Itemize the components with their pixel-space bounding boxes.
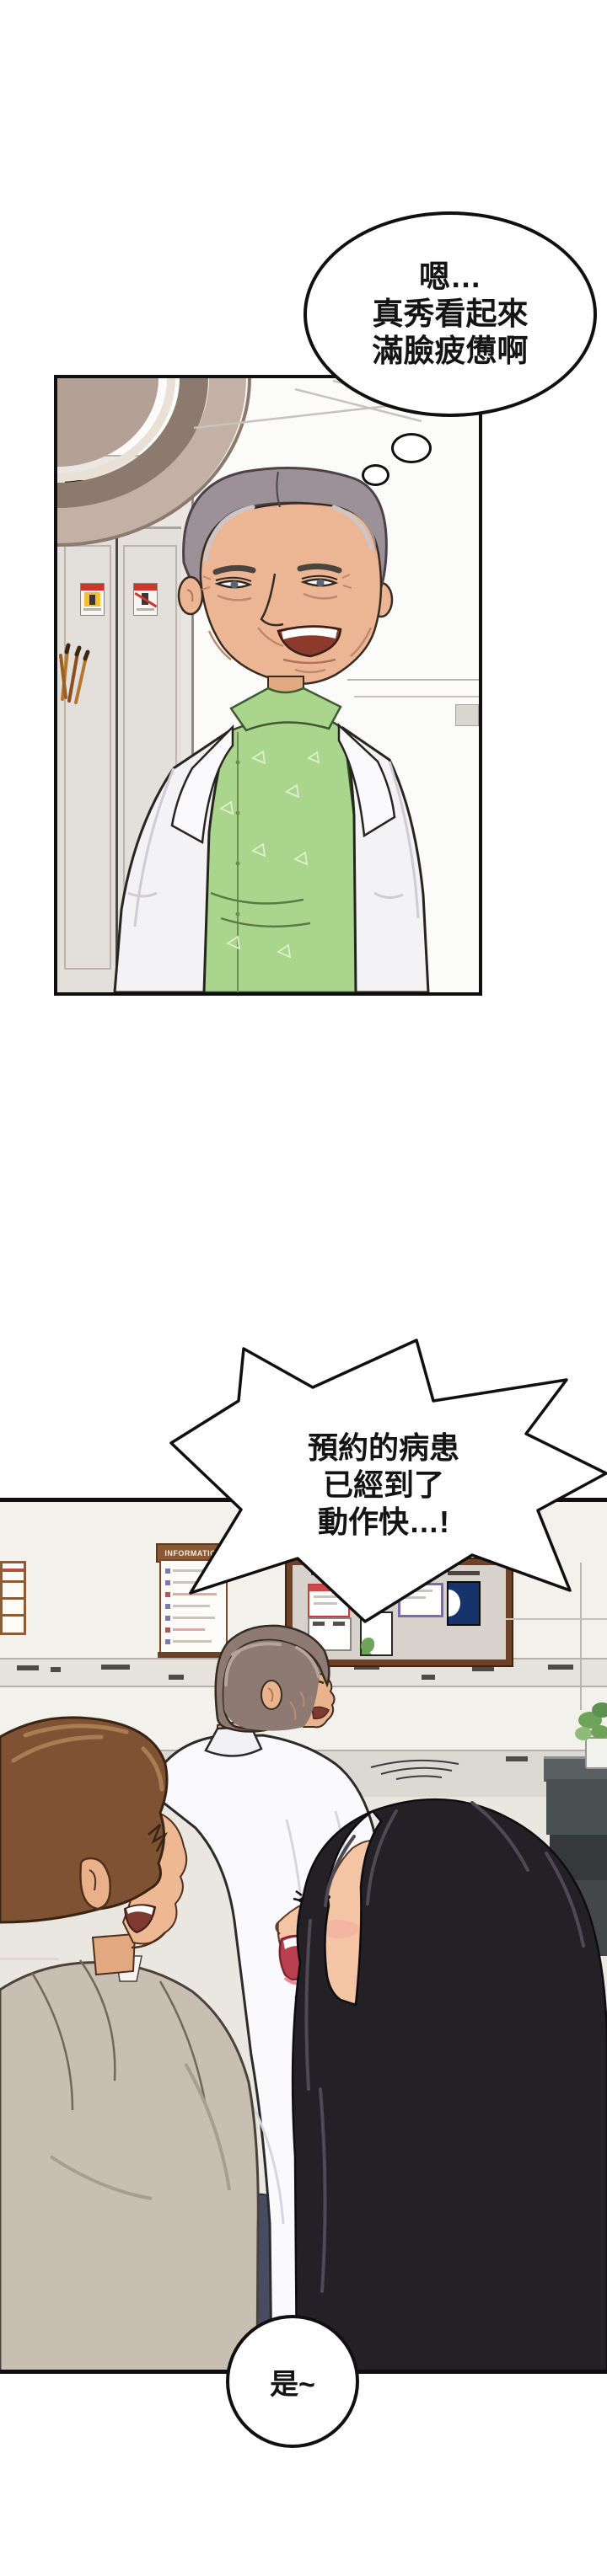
panel-1-clinic-hallway — [54, 375, 482, 996]
thought-line-2: 真秀看起來 — [373, 296, 529, 333]
reply-bubble: 是~ — [226, 2315, 359, 2448]
thought-trail-circle-large — [391, 433, 432, 463]
plant-leaves — [575, 1702, 607, 1740]
panel1-artwork — [57, 378, 479, 992]
thought-line-1: 嗯… — [419, 259, 481, 296]
burst-line-2: 已經到了 — [270, 1467, 497, 1504]
reply-text: 是~ — [270, 2361, 315, 2402]
thought-line-3: 滿臉疲憊啊 — [373, 333, 529, 370]
stick-decor — [61, 645, 88, 703]
burst-bubble-text: 預約的病患 已經到了 動作快…! — [270, 1430, 497, 1541]
woman-figure — [276, 1799, 607, 2370]
burst-line-1: 預約的病患 — [270, 1430, 497, 1467]
thought-bubble: 嗯… 真秀看起來 滿臉疲憊啊 — [303, 211, 597, 417]
burst-line-3: 動作快…! — [270, 1504, 497, 1541]
comic-page: 嗯… 真秀看起來 滿臉疲憊啊 INFORMATION — [0, 0, 607, 2576]
thought-trail-circle-small — [362, 464, 389, 486]
swoosh-lines — [371, 1761, 459, 1779]
doctor-figure — [115, 468, 428, 993]
